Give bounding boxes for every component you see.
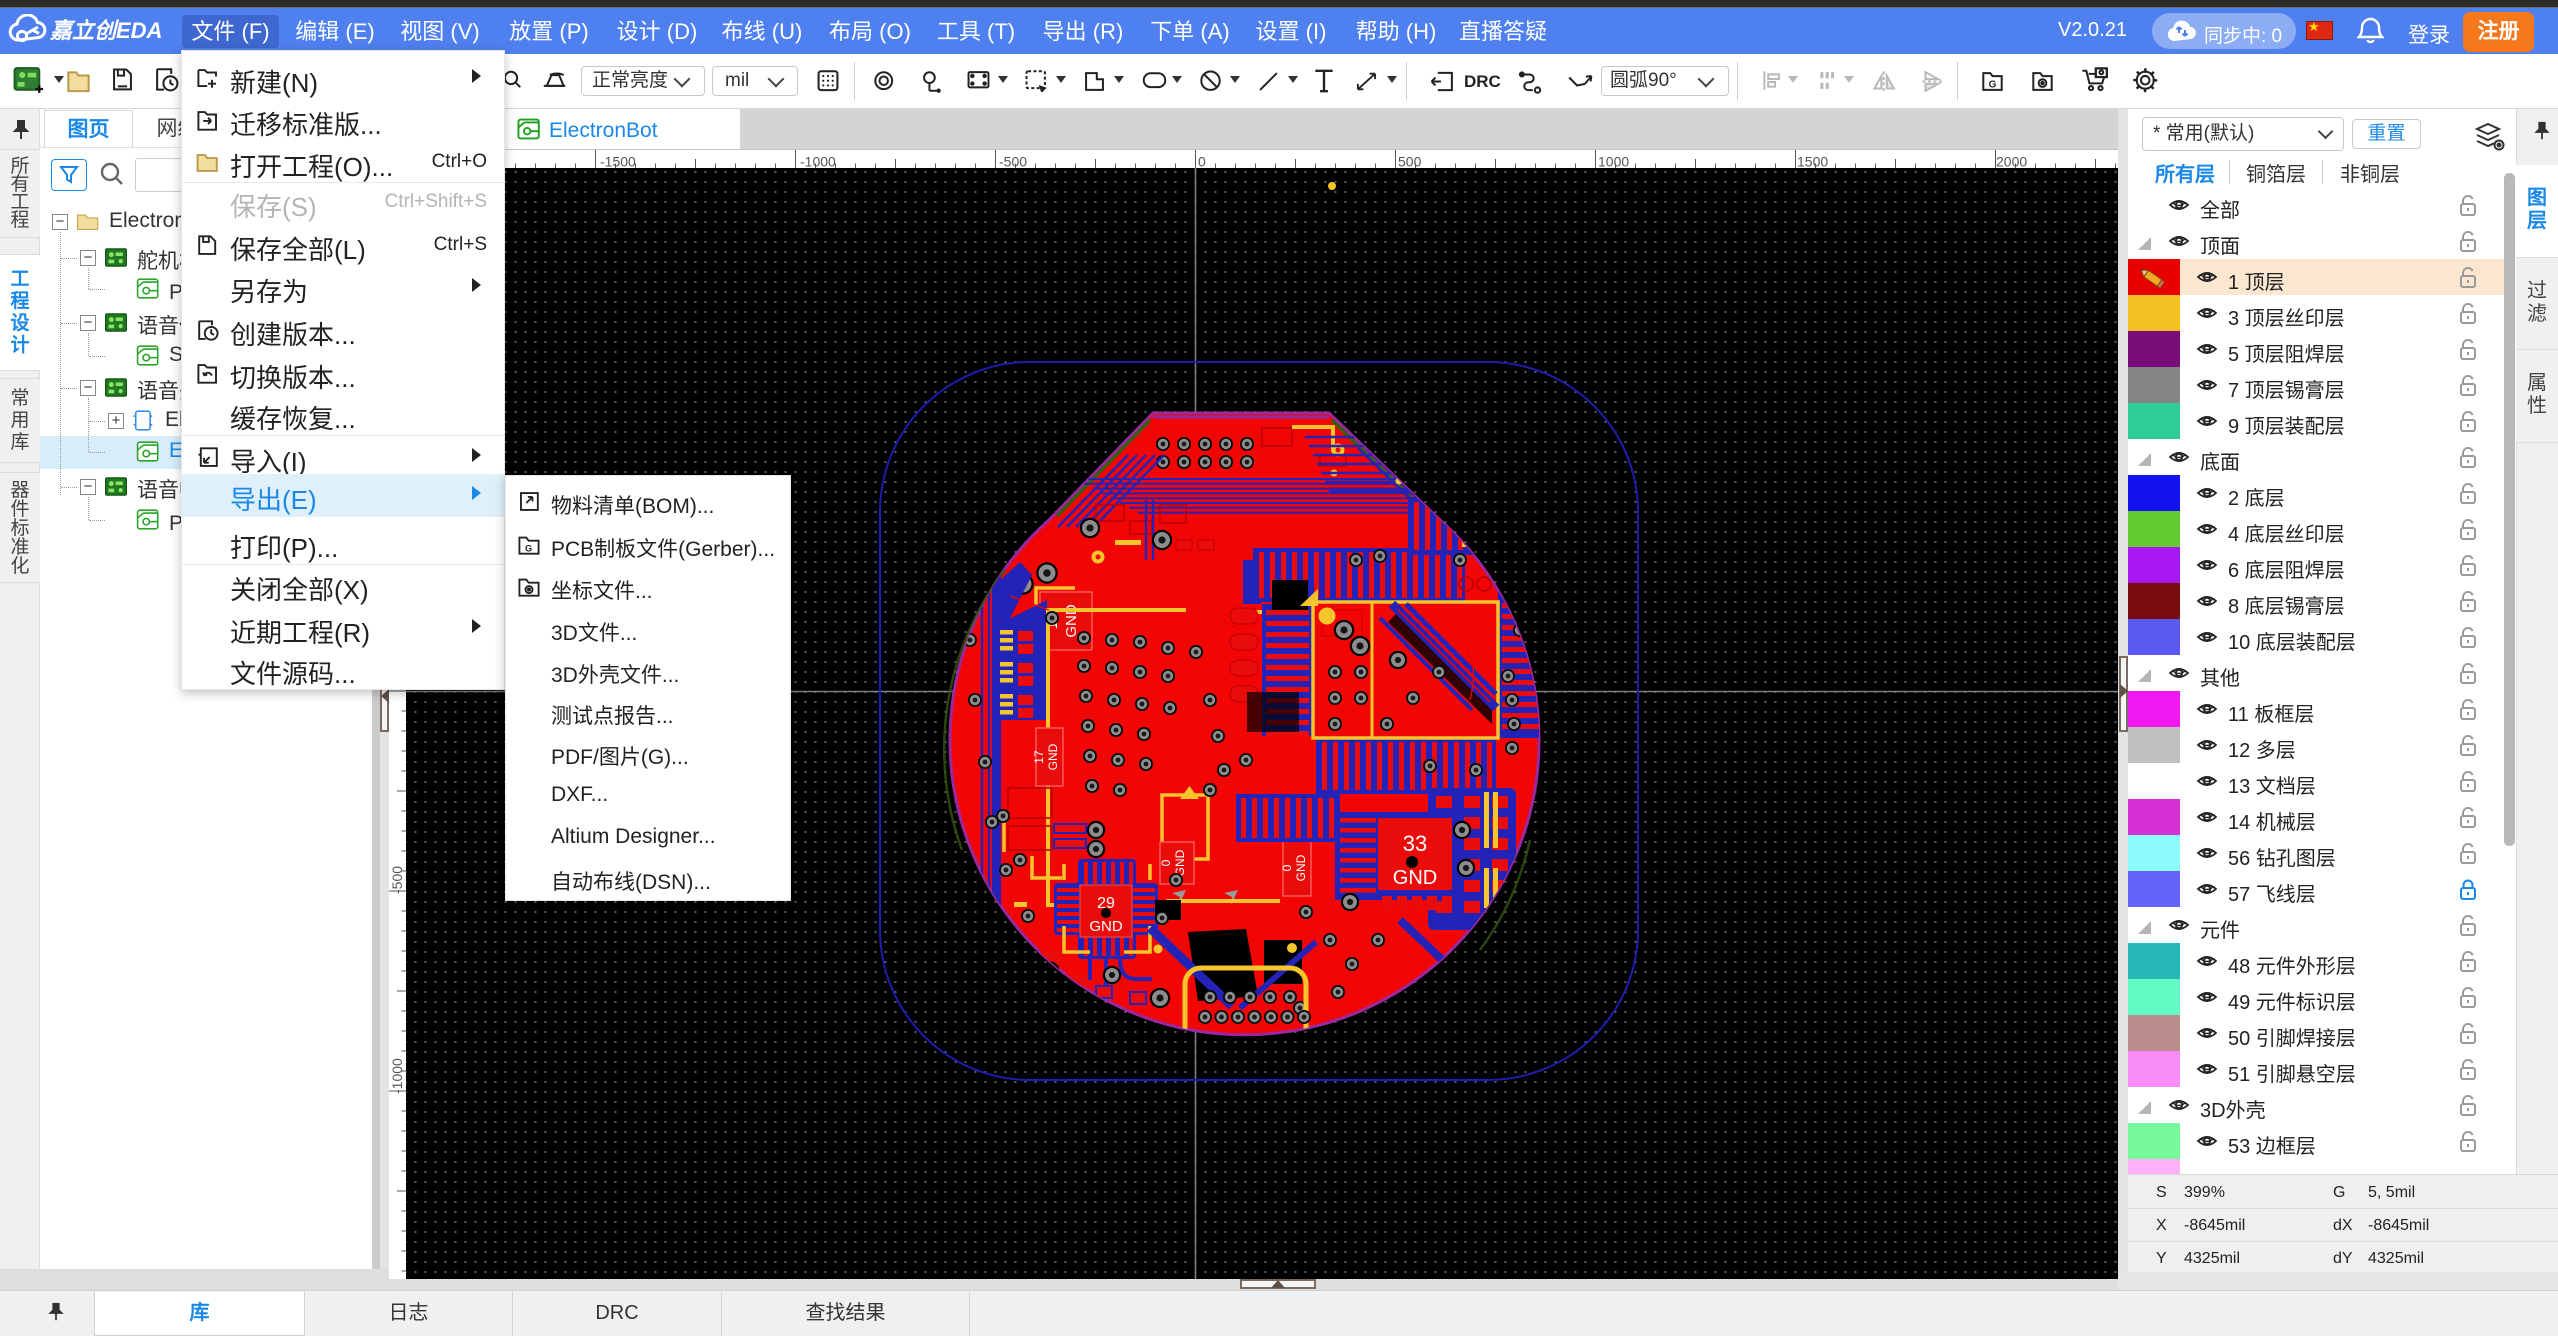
svg-text:33: 33: [1403, 831, 1427, 856]
svg-text:2000: 2000: [1996, 154, 2027, 169]
svg-text:-500: -500: [999, 154, 1027, 169]
svg-text:-500: -500: [389, 866, 405, 894]
svg-text:1000: 1000: [1598, 154, 1629, 169]
svg-text:GND: GND: [1173, 849, 1187, 876]
svg-text:G: G: [525, 543, 532, 553]
svg-text:GND: GND: [1046, 743, 1060, 770]
svg-text:0: 0: [1198, 154, 1206, 169]
svg-text:0: 0: [1280, 864, 1294, 871]
svg-text:G: G: [1989, 80, 1997, 91]
svg-text:-1000: -1000: [800, 154, 836, 169]
svg-text:-1000: -1000: [389, 1058, 405, 1094]
svg-text:-1500: -1500: [600, 154, 636, 169]
svg-text:1500: 1500: [1797, 154, 1828, 169]
svg-text:GND: GND: [1089, 918, 1123, 935]
svg-text:GND: GND: [1393, 867, 1437, 889]
svg-text:GND: GND: [1294, 854, 1308, 881]
svg-text:0: 0: [1159, 859, 1173, 866]
svg-text:500: 500: [1398, 154, 1422, 169]
svg-text:17: 17: [1032, 750, 1046, 764]
